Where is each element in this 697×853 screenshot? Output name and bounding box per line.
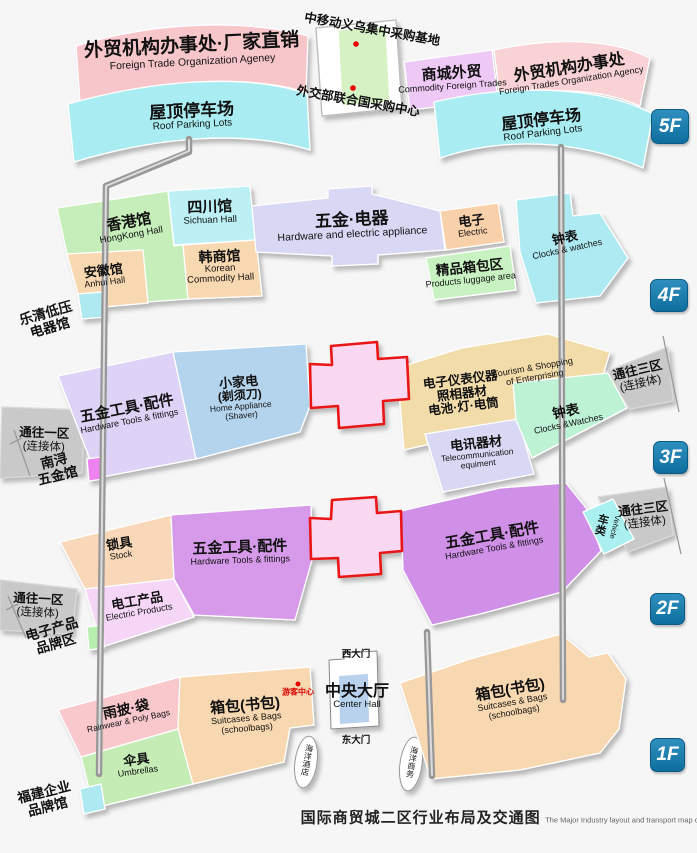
atrium-3f	[310, 342, 409, 428]
map-title: 国际商贸城二区行业布局及交通图 The Major Industry layou…	[301, 809, 697, 826]
floor-map: 5F 4F 3F 2F 1F 外贸机构办事处·厂家直销 Foreign Trad…	[0, 0, 697, 853]
west-gate-zh: 西大门	[342, 650, 371, 660]
ramp-district1-2f-sub: (连接体)	[12, 605, 63, 620]
label-visitor-center: 游客中心	[282, 689, 314, 698]
ramp-district1-3f-zh: 通往一区	[19, 426, 69, 441]
label-roof-parking-left: 屋顶停车场 Roof Parking Lots	[149, 100, 235, 134]
label-suitcases-left: 箱包(书包) Suitcases & Bags (schoolbags)	[209, 695, 282, 737]
floor-badge-5f: 5F	[651, 109, 689, 144]
label-ramp-district1-3f: 通往一区 (连接体)	[19, 426, 70, 454]
floor-badge-3f: 3F	[653, 441, 688, 474]
label-hardware-tools-2f-left: 五金工具·配件 Hardware Tools & fittings	[190, 538, 290, 567]
label-electric-4f: 电子 Electric	[456, 212, 488, 239]
atrium-2f	[310, 497, 402, 577]
floor-badge-4f: 4F	[650, 279, 688, 312]
marker-dot-bottom	[350, 85, 356, 91]
region-anhui-corner	[78, 292, 105, 319]
east-gate-zh: 东大门	[342, 736, 371, 746]
label-anhui-hall: 安徽馆 Anhui Hall	[82, 262, 126, 291]
sichuan-hall-en: Sichuan Hall	[183, 215, 237, 227]
label-center-hall: 中央大厅 Center Hall	[325, 683, 389, 711]
label-locks: 锁具 Stock	[105, 535, 134, 563]
marker-dot-top	[353, 41, 359, 47]
region-hardware-tools-2f-right	[401, 483, 601, 625]
label-ramp-district1-2f: 通往一区 (连接体)	[12, 592, 63, 620]
label-korean-hall: 韩商馆 Korean Commodity Hall	[186, 247, 255, 286]
map-title-zh: 国际商贸城二区行业布局及交通图	[301, 809, 541, 826]
visitor-center-zh: 游客中心	[282, 689, 314, 698]
floor-badge-1f: 1F	[650, 738, 685, 772]
label-home-appliance: 小家电 (剃须刀) Home Appliance (Shaver)	[207, 373, 273, 424]
center-hall-en: Center Hall	[325, 701, 389, 711]
floor-badge-2f: 2F	[650, 593, 685, 625]
region-fujian-corner	[80, 784, 105, 814]
label-west-gate: 西大门	[342, 650, 371, 660]
label-sichuan-hall: 四川馆 Sichuan Hall	[183, 199, 237, 227]
map-title-en: The Major Industry layout and transport …	[545, 815, 697, 824]
center-hall-zh: 中央大厅	[325, 683, 389, 700]
visitor-center-dot	[296, 682, 301, 687]
label-east-gate: 东大门	[342, 736, 371, 746]
